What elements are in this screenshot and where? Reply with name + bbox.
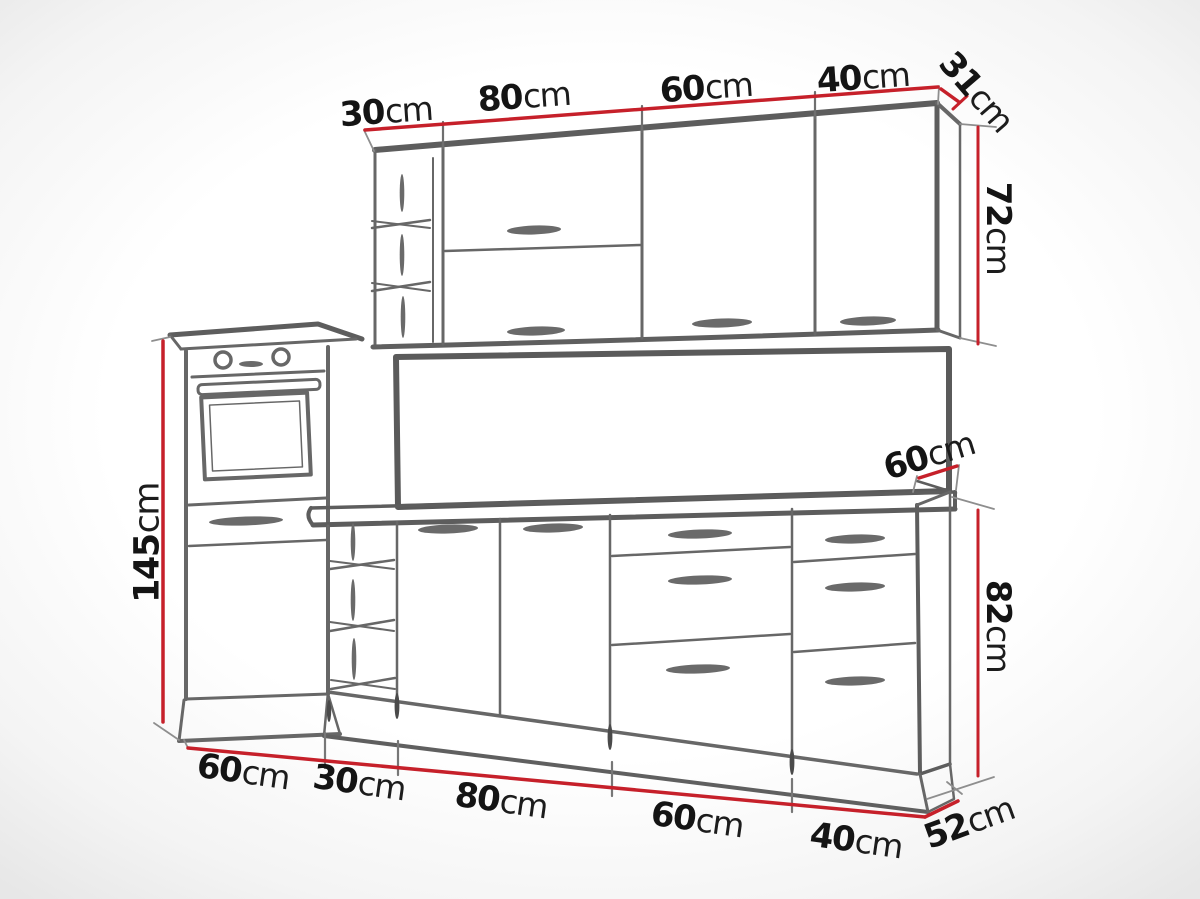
kitchen-line-drawing	[0, 0, 1200, 899]
wall-height-label: 72cm	[981, 182, 1015, 275]
tall-oven-cabinet-drawing	[170, 324, 362, 741]
base-height-label: 82cm	[981, 580, 1015, 673]
kitchen-dimension-diagram: 30cm 80cm 60cm 40cm 31cm 72cm 145cm 60cm…	[0, 0, 1200, 899]
wall-open-shelf-unit	[372, 158, 433, 342]
tall-cabinet-height-label: 145cm	[131, 483, 166, 603]
base-cabinets-drawing	[324, 492, 954, 812]
base-double-door-unit	[418, 519, 583, 714]
wall-door-handle	[692, 317, 752, 328]
drawer-handle	[209, 515, 283, 527]
base-drawer-unit-40	[794, 533, 915, 686]
wall-flip-door-unit	[445, 225, 641, 337]
wall-width-label-40: 40cm	[816, 58, 911, 98]
base-open-shelf-unit	[330, 523, 395, 689]
wall-cabinets-drawing	[372, 103, 960, 347]
wall-width-label-30: 30cm	[339, 92, 434, 132]
backsplash-panel-drawing	[396, 349, 949, 507]
wall-door-handle	[840, 316, 896, 327]
base-drawer-unit-60	[612, 528, 790, 674]
wall-width-label-80: 80cm	[477, 77, 572, 117]
wall-width-label-60: 60cm	[659, 68, 754, 108]
oven-icon	[192, 349, 324, 479]
